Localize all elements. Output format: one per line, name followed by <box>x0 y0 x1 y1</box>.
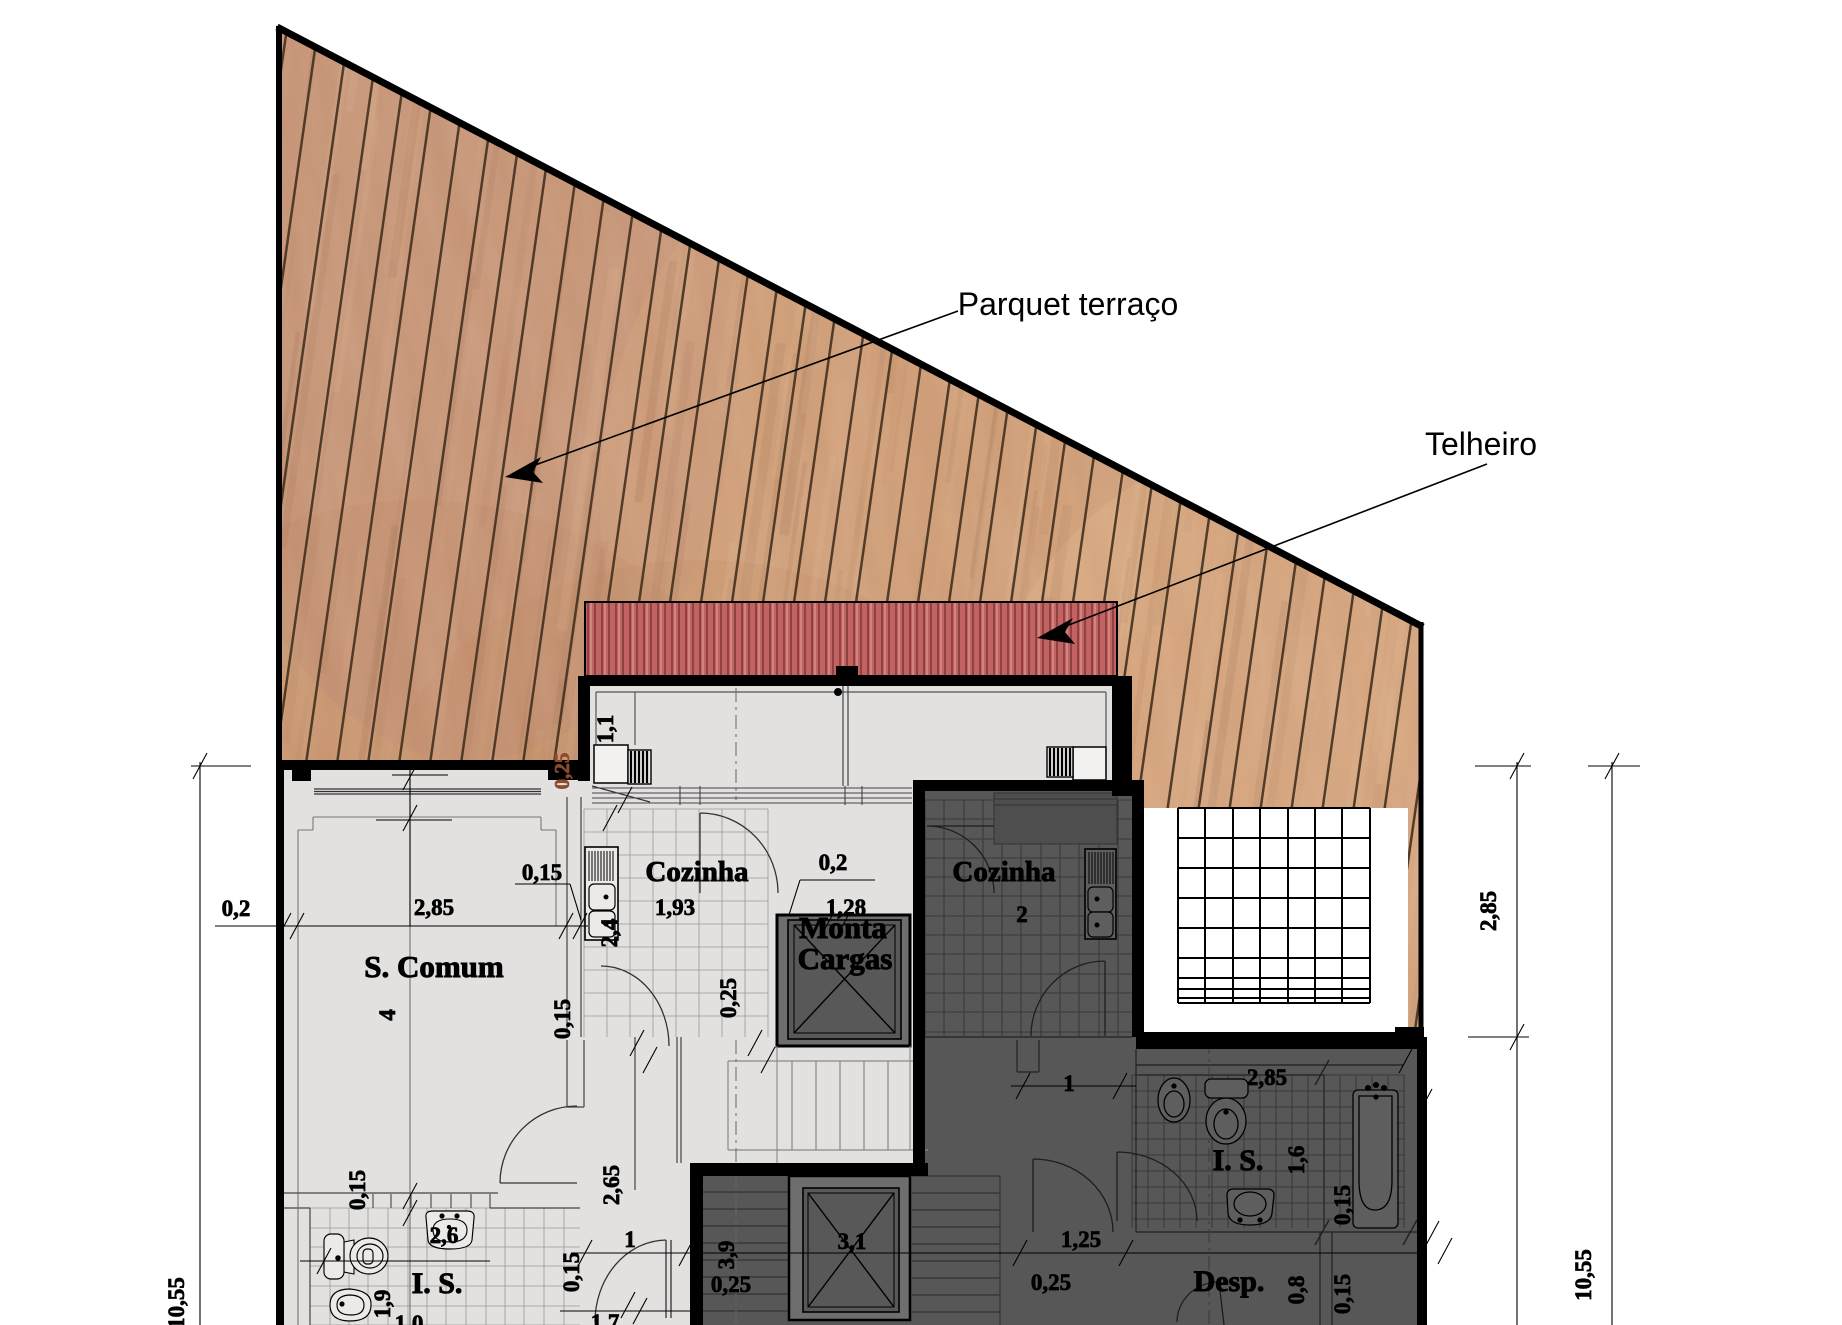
svg-text:0,15: 0,15 <box>1330 1274 1355 1314</box>
svg-text:I. S.: I. S. <box>412 1267 463 1300</box>
svg-text:0,15: 0,15 <box>1330 1185 1355 1225</box>
svg-text:1,1: 1,1 <box>593 715 618 744</box>
svg-text:10,55: 10,55 <box>164 1277 189 1325</box>
svg-text:3,9: 3,9 <box>714 1241 739 1270</box>
svg-text:0,25: 0,25 <box>711 1272 751 1297</box>
svg-text:2,6: 2,6 <box>430 1223 459 1248</box>
svg-text:2,85: 2,85 <box>414 895 454 920</box>
svg-text:1: 1 <box>624 1227 636 1252</box>
svg-text:Cargas: Cargas <box>798 941 893 976</box>
svg-text:Parquet terraço: Parquet terraço <box>958 286 1179 322</box>
svg-text:1,93: 1,93 <box>655 895 695 920</box>
svg-text:0,2: 0,2 <box>819 850 848 875</box>
svg-text:2,85: 2,85 <box>1476 891 1501 931</box>
svg-text:0,25: 0,25 <box>550 753 574 790</box>
svg-text:0,15: 0,15 <box>522 860 562 885</box>
svg-text:0,25: 0,25 <box>1031 1270 1071 1295</box>
svg-text:1,28: 1,28 <box>826 895 866 920</box>
svg-text:0,8: 0,8 <box>1284 1276 1309 1305</box>
svg-text:2,85: 2,85 <box>1247 1065 1287 1090</box>
svg-text:Desp.: Desp. <box>1194 1265 1265 1298</box>
svg-text:Cozinha: Cozinha <box>645 856 749 888</box>
svg-text:0,15: 0,15 <box>345 1170 370 1210</box>
svg-text:1,25: 1,25 <box>1061 1227 1101 1252</box>
svg-text:Telheiro: Telheiro <box>1425 426 1537 462</box>
svg-text:1,6: 1,6 <box>1284 1146 1309 1175</box>
svg-text:3,1: 3,1 <box>838 1229 867 1254</box>
svg-text:S. Comum: S. Comum <box>364 949 504 984</box>
svg-text:0,15: 0,15 <box>550 999 575 1039</box>
svg-text:2,4: 2,4 <box>597 918 622 947</box>
svg-text:10,55: 10,55 <box>1571 1249 1596 1301</box>
svg-text:2,65: 2,65 <box>599 1165 624 1205</box>
svg-text:1,0: 1,0 <box>395 1311 424 1325</box>
svg-text:1: 1 <box>1063 1071 1075 1096</box>
svg-text:0,2: 0,2 <box>222 896 251 921</box>
svg-text:1,7: 1,7 <box>591 1310 620 1325</box>
svg-text:2: 2 <box>1016 902 1028 927</box>
svg-text:0,15: 0,15 <box>559 1252 584 1292</box>
svg-text:4: 4 <box>375 1009 400 1021</box>
svg-text:I. S.: I. S. <box>1213 1144 1264 1177</box>
svg-text:Cozinha: Cozinha <box>952 856 1056 888</box>
svg-text:0,25: 0,25 <box>716 978 741 1018</box>
svg-text:1,9: 1,9 <box>370 1290 395 1319</box>
